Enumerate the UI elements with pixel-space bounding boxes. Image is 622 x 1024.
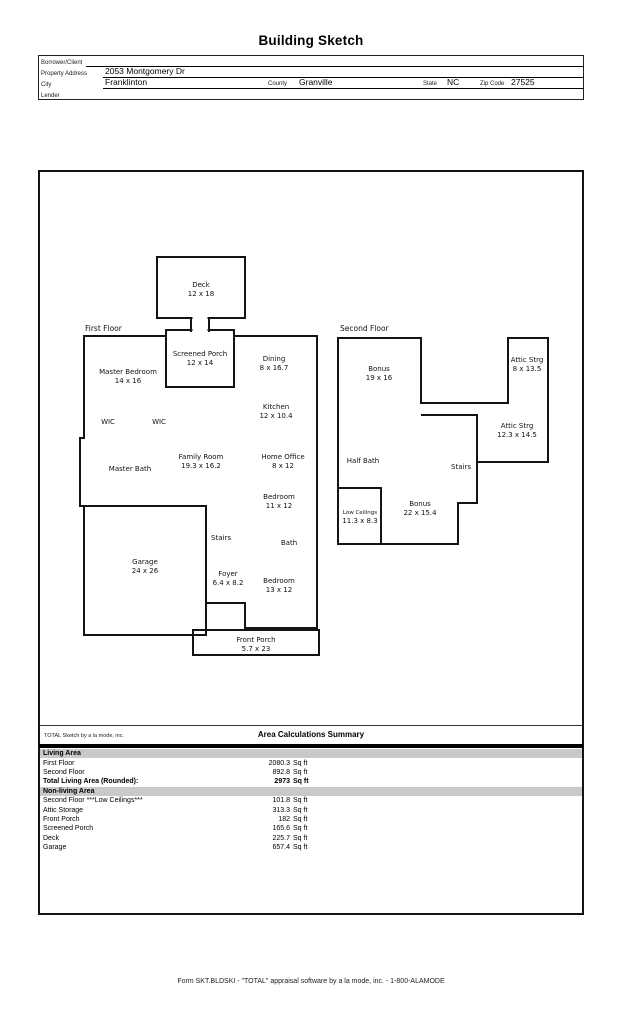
room-label-bath: Bath: [281, 539, 297, 547]
room-label-half-bath: Half Bath: [347, 457, 379, 465]
room-dims-foyer: 6.4 x 8.2: [213, 579, 244, 587]
property-header-form: Borrower/Client Property Address 2053 Mo…: [38, 55, 584, 100]
zip-label: Zip Code: [480, 81, 504, 87]
summary-row-second-floor: Second Floor 892.8 Sq ft: [40, 768, 582, 777]
row-unit: Sq ft: [293, 834, 307, 843]
state-value: NC: [447, 77, 459, 87]
row-area: 657.4: [190, 843, 290, 852]
room-label-family-room: Family Room: [179, 453, 224, 461]
lender-field: [64, 89, 583, 100]
room-dims-low-ceilings: 11.3 x 8.3: [342, 517, 377, 525]
row-unit: Sq ft: [293, 843, 307, 852]
room-label-stairs-first: Stairs: [211, 534, 231, 542]
room-dims-bedroom-13x12: 13 x 12: [266, 586, 292, 594]
lender-label: Lender: [41, 93, 64, 99]
row-label: Second Floor: [43, 768, 85, 777]
room-label-bonus-22x15: Bonus: [409, 500, 431, 508]
room-dims-attic-strg-8x13: 8 x 13.5: [513, 365, 542, 373]
room-label-bonus-19x16: Bonus: [368, 365, 390, 373]
room-dims-front-porch: 5.7 x 23: [242, 645, 271, 653]
room-label-deck: Deck: [192, 281, 211, 289]
row-unit: Sq ft: [293, 824, 307, 833]
summary-row-first-floor: First Floor 2080.3 Sq ft: [40, 759, 582, 768]
room-dims-family-room: 19.3 x 16.2: [181, 462, 221, 470]
room-dims-deck: 12 x 18: [188, 290, 214, 298]
row-area: 2973: [190, 777, 290, 786]
row-label: First Floor: [43, 759, 75, 768]
borrower-label: Borrower/Client: [41, 60, 86, 66]
row-unit: Sq ft: [293, 806, 307, 815]
row-area: 225.7: [190, 834, 290, 843]
room-label-screened-porch: Screened Porch: [173, 350, 227, 358]
property-address-label: Property Address: [41, 71, 103, 77]
living-area-label: Living Area: [43, 750, 81, 757]
room-label-low-ceilings: Low Ceilings: [343, 510, 377, 516]
state-label: State: [423, 81, 437, 87]
second-floor-stairs-wall: [421, 415, 477, 462]
first-floor-label: First Floor: [85, 324, 123, 333]
room-dims-garage: 24 x 26: [132, 567, 159, 575]
summary-divider: [39, 725, 583, 726]
room-label-attic-strg-8x13: Attic Strg: [511, 356, 544, 364]
row-area: 892.8: [190, 768, 290, 777]
building-sketch-page: Building Sketch Borrower/Client Property…: [0, 0, 622, 1024]
room-label-garage: Garage: [132, 558, 158, 566]
low-ceilings-outline: [338, 488, 381, 544]
room-dims-bonus-22x15: 22 x 15.4: [403, 509, 437, 517]
room-dims-bonus-19x16: 19 x 16: [366, 374, 393, 382]
summary-row-low-ceilings: Second Floor ***Low Ceilings*** 101.8 Sq…: [40, 796, 582, 805]
summary-row-deck: Deck 225.7 Sq ft: [40, 834, 582, 843]
city-county-state-zip-row: City Franklinton County Granville State …: [39, 78, 583, 89]
second-floor-label: Second Floor: [340, 324, 390, 333]
room-label-master-bath: Master Bath: [109, 465, 151, 473]
row-unit: Sq ft: [293, 777, 309, 786]
row-area: 313.3: [190, 806, 290, 815]
summary-row-total-living: Total Living Area (Rounded): 2973 Sq ft: [40, 777, 582, 786]
room-dims-master-bedroom: 14 x 16: [115, 377, 142, 385]
row-label: Screened Porch: [43, 824, 93, 833]
row-label: Attic Storage: [43, 806, 83, 815]
summary-row-screened-porch: Screened Porch 165.6 Sq ft: [40, 824, 582, 833]
row-unit: Sq ft: [293, 768, 307, 777]
row-unit: Sq ft: [293, 815, 307, 824]
summary-row-attic-storage: Attic Storage 313.3 Sq ft: [40, 806, 582, 815]
room-label-front-porch: Front Porch: [236, 636, 275, 644]
row-area: 165.6: [190, 824, 290, 833]
living-area-band: Living Area: [40, 749, 582, 759]
room-dims-screened-porch: 12 x 14: [187, 359, 214, 367]
nonliving-area-label: Non-living Area: [43, 788, 94, 795]
city-value: Franklinton: [105, 77, 147, 87]
room-label-wic-right: WIC: [152, 418, 166, 426]
room-label-attic-strg-12x14: Attic Strg: [501, 422, 534, 430]
row-label: Deck: [43, 834, 59, 843]
room-label-home-office: Home Office: [261, 453, 304, 461]
row-area: 182: [190, 815, 290, 824]
room-dims-attic-strg-12x14: 12.3 x 14.5: [497, 431, 537, 439]
room-label-bedroom-13x12: Bedroom: [263, 577, 295, 585]
row-label: Total Living Area (Rounded):: [43, 777, 138, 786]
room-label-bedroom-11x12: Bedroom: [263, 493, 295, 501]
property-address-value: 2053 Montgomery Dr: [105, 66, 185, 76]
row-label: Second Floor ***Low Ceilings***: [43, 796, 143, 805]
summary-header-bar: [39, 744, 583, 748]
row-label: Garage: [43, 843, 66, 852]
summary-row-front-porch: Front Porch 182 Sq ft: [40, 815, 582, 824]
room-dims-dining: 8 x 16.7: [260, 364, 289, 372]
city-label: City: [41, 82, 103, 88]
county-value: Granville: [299, 77, 333, 87]
county-label: County: [268, 81, 287, 87]
room-dims-home-office: 8 x 12: [272, 462, 294, 470]
room-dims-bedroom-11x12: 11 x 12: [266, 502, 292, 510]
area-calculations-title: Area Calculations Summary: [38, 730, 584, 739]
zip-value: 27525: [511, 77, 535, 87]
row-area: 2080.3: [190, 759, 290, 768]
summary-row-garage: Garage 657.4 Sq ft: [40, 843, 582, 852]
row-unit: Sq ft: [293, 796, 307, 805]
room-label-foyer: Foyer: [218, 570, 238, 578]
row-unit: Sq ft: [293, 759, 307, 768]
form-footer: Form SKT.BLDSKI - "TOTAL" appraisal soft…: [0, 978, 622, 985]
row-area: 101.8: [190, 796, 290, 805]
row-label: Front Porch: [43, 815, 80, 824]
room-label-kitchen: Kitchen: [263, 403, 289, 411]
room-label-wic-left: WIC: [101, 418, 115, 426]
floor-plan-drawing: First Floor Second Floor Deck 12 x 18 Sc…: [38, 170, 584, 726]
room-label-stairs-second: Stairs: [451, 463, 471, 471]
room-dims-kitchen: 12 x 10.4: [259, 412, 293, 420]
city-field: Franklinton County Granville State NC Zi…: [103, 77, 583, 89]
page-title: Building Sketch: [0, 33, 622, 48]
nonliving-area-band: Non-living Area: [40, 787, 582, 797]
lender-row: Lender: [39, 89, 583, 100]
room-label-master-bedroom: Master Bedroom: [99, 368, 157, 376]
deck-porch-opening: [193, 315, 208, 333]
room-label-dining: Dining: [263, 355, 286, 363]
